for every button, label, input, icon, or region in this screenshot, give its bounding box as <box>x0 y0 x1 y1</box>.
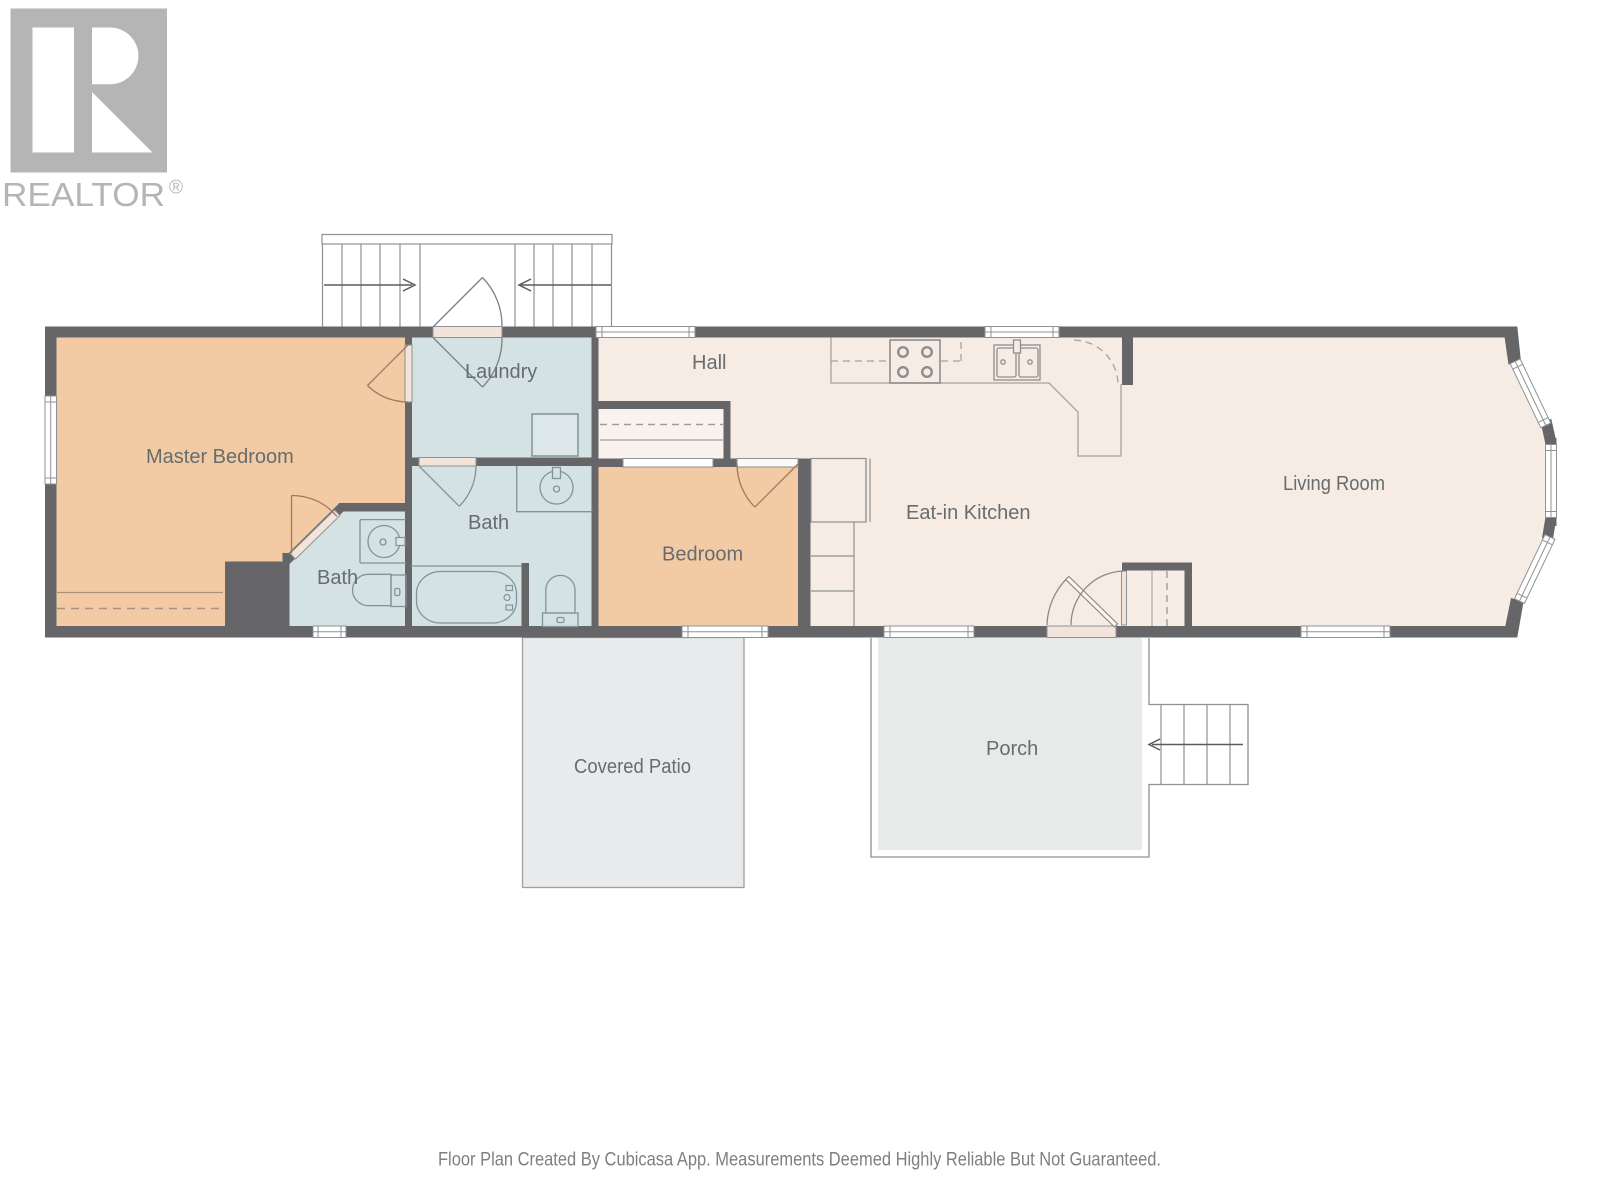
svg-text:Bath: Bath <box>317 567 358 589</box>
svg-text:REALTOR: REALTOR <box>2 176 165 213</box>
svg-text:Bath: Bath <box>468 512 509 534</box>
svg-text:Porch: Porch <box>986 738 1038 760</box>
svg-text:Master Bedroom: Master Bedroom <box>146 446 294 468</box>
svg-text:Eat-in Kitchen: Eat-in Kitchen <box>906 502 1031 524</box>
svg-text:Laundry: Laundry <box>465 361 537 383</box>
svg-text:Living Room: Living Room <box>1283 473 1385 495</box>
svg-text:Hall: Hall <box>692 352 726 374</box>
svg-text:Covered Patio: Covered Patio <box>574 756 691 778</box>
svg-text:Floor Plan Created By Cubicasa: Floor Plan Created By Cubicasa App. Meas… <box>438 1149 1161 1171</box>
svg-text:®: ® <box>169 178 183 199</box>
svg-text:Bedroom: Bedroom <box>662 544 743 566</box>
